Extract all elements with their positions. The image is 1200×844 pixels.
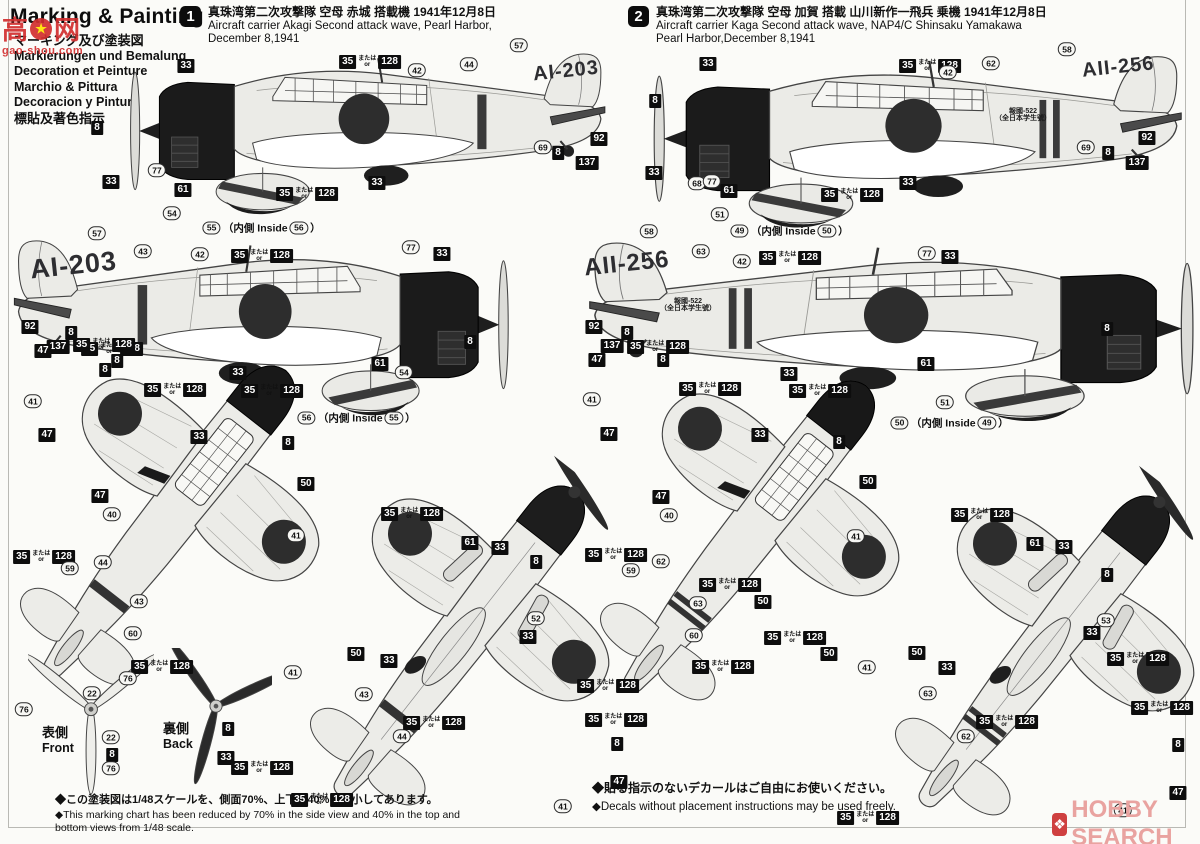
paint-callout-combo: 35またはor128 (759, 251, 821, 265)
slogan-line-2: （全日本学生號） (995, 115, 1051, 122)
paint-callout-box: 8 (649, 94, 661, 108)
decal-callout-circle: 54 (163, 206, 181, 220)
decal-callout-circle: 42 (939, 65, 957, 79)
gao-char-2: 网 (54, 10, 80, 47)
paint-callout-box: 8 (1172, 738, 1184, 752)
paint-callout-box: 137 (1126, 156, 1149, 170)
decal-callout-circle: 41 (847, 529, 865, 543)
decal-callout-circle: 69 (1077, 140, 1095, 154)
decal-callout-circle: 62 (652, 554, 670, 568)
decal-callout-circle: 51 (936, 395, 954, 409)
decal-callout-circle: 22 (102, 730, 120, 744)
paint-callout-box: 33 (1083, 626, 1100, 640)
paint-callout-combo: 35またはor128 (241, 384, 303, 398)
decal-callout-circle: 63 (692, 244, 710, 258)
inside-color-note: 49（内側 Inside50） (730, 224, 849, 239)
paint-callout-box: 92 (1138, 131, 1155, 145)
paint-callout-box: 47 (38, 428, 55, 442)
paint-callout-box: 92 (21, 320, 38, 334)
paint-callout-box: 8 (611, 737, 623, 751)
marking-painting-sheet: Marking & Painting マーキング及び塗装図 Markierung… (0, 0, 1200, 844)
paint-callout-box: 33 (645, 166, 662, 180)
paint-callout-box: 33 (941, 250, 958, 264)
paint-callout-box: 47 (588, 353, 605, 367)
paint-callout-combo: 35またはor128 (381, 507, 443, 521)
prop-front-label: 表側 Front (42, 722, 74, 755)
inside-color-note: 56（内側 Inside55） (297, 411, 416, 426)
decal-callout-circle: 77 (703, 174, 721, 188)
thumb-gear-icon: ★ (30, 18, 52, 40)
decal-callout-circle: 57 (510, 38, 528, 52)
section-1-title-jp: 真珠湾第二次攻撃隊 空母 赤城 搭載機 1941年12月8日 (208, 6, 496, 20)
section-1-header: 1 真珠湾第二次攻撃隊 空母 赤城 搭載機 1941年12月8日 Aircraf… (180, 6, 610, 47)
paint-callout-box: 8 (552, 146, 564, 160)
decal-callout-circle: 60 (124, 626, 142, 640)
gao-char-1: 高 (2, 10, 28, 47)
paint-callout-box: 8 (621, 326, 633, 340)
paint-callout-box: 8 (282, 436, 294, 450)
decal-callout-circle: 77 (402, 240, 420, 254)
section-2-badge: 2 (628, 6, 649, 27)
paint-callout-combo: 35またはor128 (231, 761, 293, 775)
paint-callout-box: 33 (519, 630, 536, 644)
fuselage-slogan-left: 報國-522 （全日本学生號） (660, 298, 716, 312)
decal-callout-circle: 76 (15, 702, 33, 716)
decal-callout-circle: 59 (622, 563, 640, 577)
paint-callout-box: 50 (297, 477, 314, 491)
slogan-line-1: 報國-522 (995, 108, 1051, 115)
paint-callout-box: 47 (652, 490, 669, 504)
decal-callout-circle: 40 (660, 508, 678, 522)
decal-callout-circle: 62 (957, 729, 975, 743)
decal-callout-circle: 41 (284, 665, 302, 679)
scale-note-en: ◆This marking chart has been reduced by … (55, 809, 493, 834)
decal-callout-circle: 59 (61, 561, 79, 575)
paint-callout-box: 47 (91, 489, 108, 503)
paint-callout-box: 47 (610, 775, 627, 789)
paint-callout-box: 8 (1101, 322, 1113, 336)
paint-callout-box: 33 (177, 59, 194, 73)
decal-callout-circle: 62 (982, 56, 1000, 70)
decal-callout-circle: 58 (1058, 42, 1076, 56)
paint-callout-box: 8 (833, 435, 845, 449)
decal-callout-circle: 52 (527, 611, 545, 625)
paint-callout-combo: 35またはor128 (231, 249, 293, 263)
paint-callout-box: 61 (917, 357, 934, 371)
paint-callout-box: 33 (491, 541, 508, 555)
paint-callout-box: 8 (657, 353, 669, 367)
decal-callout-circle: 76 (102, 761, 120, 775)
decal-callout-circle: 69 (534, 140, 552, 154)
decal-callout-circle: 58 (640, 224, 658, 238)
hobbysearch-logo-icon: ❖ (1052, 813, 1067, 836)
decal-callout-circle: 41 (287, 528, 305, 542)
paint-callout-combo: 35またはor128 (692, 660, 754, 674)
paint-callout-combo: 35またはor128 (276, 187, 338, 201)
paint-callout-box: 33 (899, 176, 916, 190)
paint-callout-box: 8 (1102, 146, 1114, 160)
section-2-title-en1: Aircraft carrier Kaga Second attack wave… (656, 20, 1047, 34)
decal-callout-circle: 54 (395, 365, 413, 379)
paint-callout-box: 33 (102, 175, 119, 189)
paint-callout-box: 8 (91, 121, 103, 135)
decal-note: ◆貼る指示のないデカールはご自由にお使いください。 ◆Decals withou… (592, 779, 1062, 813)
decal-callout-circle: 53 (1097, 613, 1115, 627)
decal-callout-circle: 22 (83, 686, 101, 700)
paint-callout-box: 50 (347, 647, 364, 661)
fuselage-slogan-right: 報國-522 （全日本学生號） (995, 108, 1051, 122)
hobbysearch-text: HOBBY SEARCH (1071, 796, 1200, 844)
decal-callout-circle: 60 (685, 628, 703, 642)
scale-note: ◆この塗装図は1/48スケールを、側面70%、上下面40%に縮小してあります。 … (55, 791, 493, 834)
scale-note-jp: ◆この塗装図は1/48スケールを、側面70%、上下面40%に縮小してあります。 (55, 791, 493, 807)
paint-callout-box: 33 (1055, 540, 1072, 554)
paint-callout-box: 50 (754, 595, 771, 609)
paint-callout-box: 47 (34, 344, 51, 358)
section-1-badge: 1 (180, 6, 201, 27)
decal-callout-circle: 40 (103, 507, 121, 521)
paint-callout-combo: 35またはor128 (837, 811, 899, 825)
decal-note-jp: ◆貼る指示のないデカールはご自由にお使いください。 (592, 779, 1062, 796)
paint-callout-box: 33 (433, 247, 450, 261)
decal-callout-circle: 43 (355, 687, 373, 701)
paint-callout-box: 33 (699, 57, 716, 71)
paint-callout-combo: 35またはor128 (585, 548, 647, 562)
paint-callout-combo: 35またはor128 (291, 793, 353, 807)
prop-back-label-jp: 裏側 (163, 718, 193, 737)
paint-callout-combo: 35またはor128 (1107, 652, 1169, 666)
paint-callout-combo: 35またはor128 (1131, 701, 1193, 715)
hobbysearch-watermark: ❖ HOBBY SEARCH (1052, 796, 1200, 844)
inside-color-note: 50（内側 Inside49） (890, 416, 1009, 431)
paint-callout-box: 8 (1101, 568, 1113, 582)
paint-callout-box: 8 (106, 748, 118, 762)
decal-callout-circle: 42 (733, 254, 751, 268)
decal-callout-circle: 77 (918, 246, 936, 260)
prop-front-label-en: Front (42, 741, 74, 755)
section-1-title-en1: Aircraft carrier Akagi Second attack wav… (208, 20, 496, 34)
paint-callout-combo: 35またはor128 (585, 713, 647, 727)
paint-callout-combo: 35またはor128 (339, 55, 401, 69)
prop-front-label-jp: 表側 (42, 722, 74, 741)
slogan-line-1: 報國-522 (660, 298, 716, 305)
paint-callout-box: 33 (368, 176, 385, 190)
paint-callout-box: 33 (938, 661, 955, 675)
paint-callout-box: 61 (461, 536, 478, 550)
decal-callout-circle: 41 (583, 392, 601, 406)
decal-callout-circle: 42 (408, 63, 426, 77)
gao-url: gao-shou.com (2, 45, 83, 57)
decal-callout-circle: 63 (919, 686, 937, 700)
decal-callout-circle: 44 (460, 57, 478, 71)
paint-callout-combo: 35またはor128 (627, 340, 689, 354)
paint-callout-box: 61 (1026, 537, 1043, 551)
paint-callout-box: 61 (174, 183, 191, 197)
paint-callout-combo: 35またはor128 (403, 716, 465, 730)
paint-callout-box: 33 (751, 428, 768, 442)
decal-callout-circle: 41 (858, 660, 876, 674)
decal-callout-circle: 41 (24, 394, 42, 408)
decal-callout-circle: 42 (191, 247, 209, 261)
paint-callout-box: 47 (600, 427, 617, 441)
paint-callout-box: 61 (720, 184, 737, 198)
paint-callout-box: 33 (217, 751, 234, 765)
paint-callout-combo: 35またはor128 (764, 631, 826, 645)
section-2-title-jp: 真珠湾第二次攻撃隊 空母 加賀 搭載 山川新作一飛兵 乗機 1941年12月8日 (656, 6, 1047, 20)
decal-callout-circle: 76 (119, 671, 137, 685)
inside-color-note: 55（内側 Inside56） (202, 221, 321, 236)
paint-callout-box: 92 (585, 320, 602, 334)
decal-callout-circle: 51 (711, 207, 729, 221)
decal-callout-circle: 44 (94, 555, 112, 569)
gaoshou-watermark: 高 ★ 网 gao-shou.com (2, 10, 83, 57)
paint-callout-combo: 35またはor128 (577, 679, 639, 693)
paint-callout-combo: 35またはor128 (821, 188, 883, 202)
paint-callout-combo: 35またはor128 (131, 660, 193, 674)
paint-callout-combo: 35またはor128 (951, 508, 1013, 522)
decal-callout-circle: 43 (134, 244, 152, 258)
section-2-title-en2: Pearl Harbor,December 8,1941 (656, 33, 1047, 47)
paint-callout-box: 8 (111, 354, 123, 368)
prop-back-label: 裏側 Back (163, 718, 193, 751)
decal-note-en: ◆Decals without placement instructions m… (592, 799, 1062, 813)
decal-callout-circle: 77 (148, 163, 166, 177)
paint-callout-box: 33 (780, 367, 797, 381)
paint-callout-box: 33 (190, 430, 207, 444)
paint-callout-combo: 35またはor128 (789, 384, 851, 398)
paint-callout-box: 33 (229, 366, 246, 380)
paint-callout-box: 137 (601, 339, 624, 353)
paint-callout-box: 8 (464, 335, 476, 349)
paint-callout-combo: 35またはor128 (144, 383, 206, 397)
decal-callout-circle: 57 (88, 226, 106, 240)
paint-callout-combo: 35またはor128 (699, 578, 761, 592)
paint-callout-box: 61 (371, 357, 388, 371)
paint-callout-combo: 35またはor128 (679, 382, 741, 396)
decal-callout-circle: 43 (130, 594, 148, 608)
decal-callout-circle: 63 (689, 596, 707, 610)
paint-callout-box: 137 (576, 156, 599, 170)
slogan-line-2: （全日本学生號） (660, 305, 716, 312)
paint-callout-box: 50 (820, 647, 837, 661)
paint-callout-box: 50 (908, 646, 925, 660)
paint-callout-box: 8 (222, 722, 234, 736)
paint-callout-box: 50 (859, 475, 876, 489)
paint-callout-box: 8 (99, 363, 111, 377)
section-2-header: 2 真珠湾第二次攻撃隊 空母 加賀 搭載 山川新作一飛兵 乗機 1941年12月… (628, 6, 1183, 47)
paint-callout-combo: 35またはor128 (73, 338, 135, 352)
paint-callout-box: 8 (530, 555, 542, 569)
decal-callout-circle: 44 (393, 729, 411, 743)
decal-callout-circle: 41 (554, 799, 572, 813)
paint-callout-box: 33 (380, 654, 397, 668)
paint-callout-box: 92 (590, 132, 607, 146)
paint-callout-combo: 35またはor128 (976, 715, 1038, 729)
prop-back-label-en: Back (163, 737, 193, 751)
